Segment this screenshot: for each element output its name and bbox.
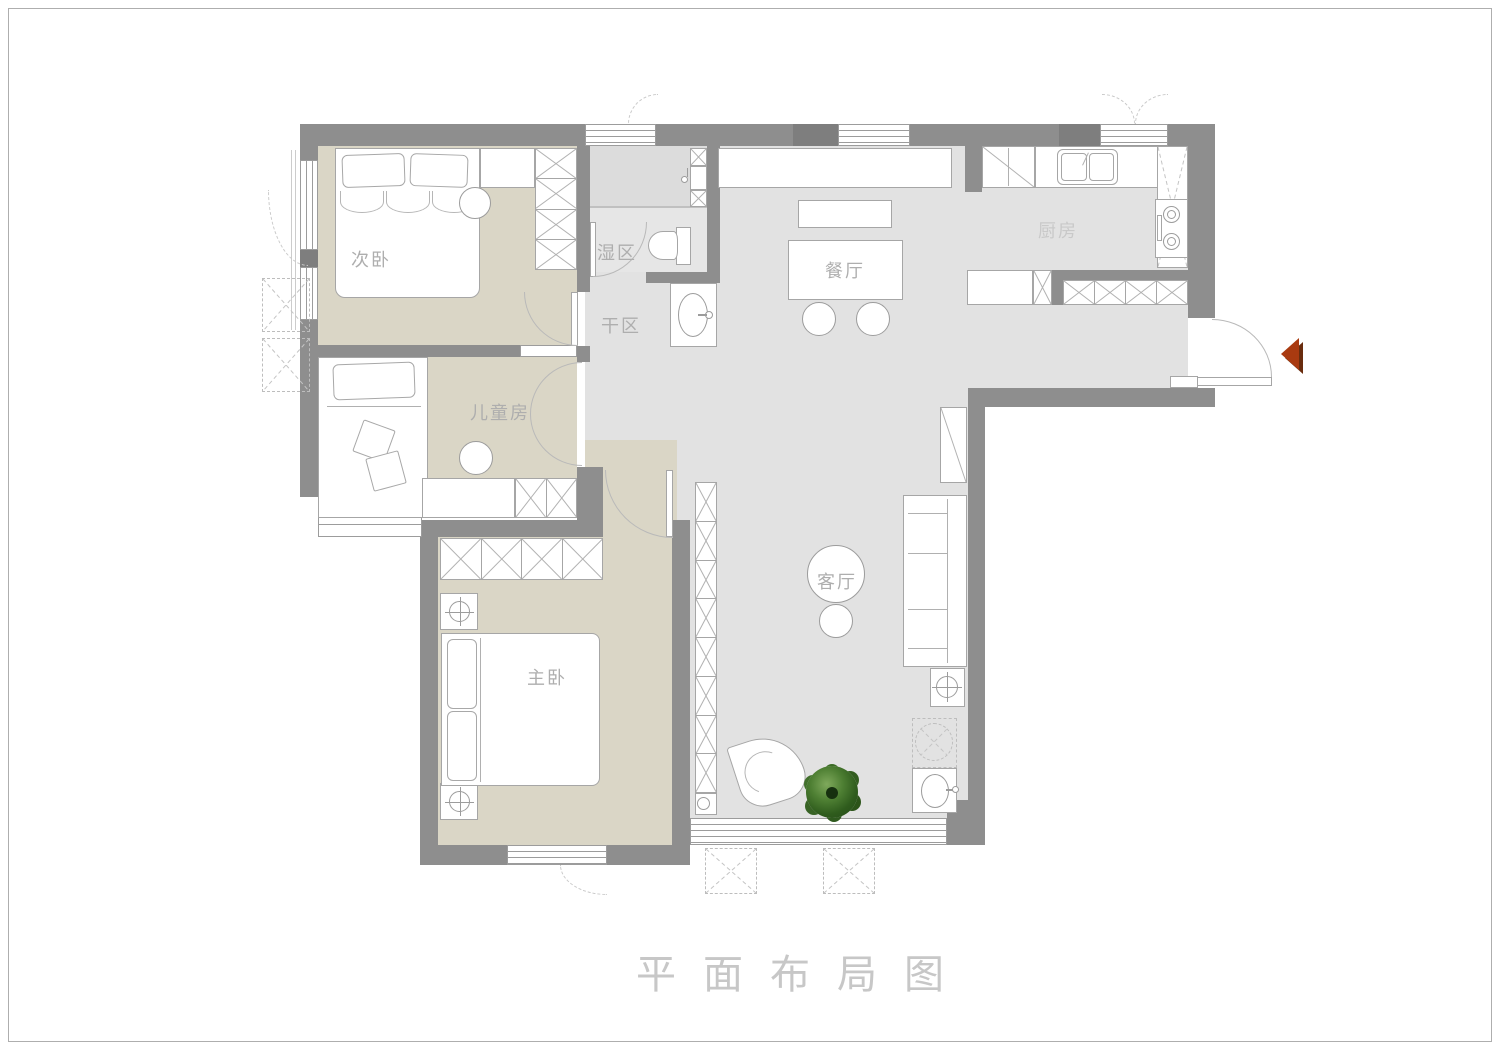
shower-head-icon [687, 168, 688, 177]
window [585, 124, 656, 146]
faucet-icon [698, 314, 707, 316]
kitchen-passage-floor [965, 192, 982, 270]
stool-round [459, 441, 493, 475]
cabinet [1033, 270, 1052, 305]
room-label-wet: 湿区 [597, 239, 637, 265]
wall [300, 124, 318, 160]
floor-plan-canvas: 次卧 儿童房 主卧 湿区 干区 餐厅 [0, 0, 1500, 1050]
bed-double [441, 633, 600, 786]
washer-drum [915, 723, 953, 761]
blanket-line [327, 406, 421, 407]
x-cell [696, 676, 716, 715]
wall-column [1059, 124, 1100, 146]
sofa-cushion-line [908, 553, 947, 554]
dry-area-floor [585, 388, 690, 440]
room-label-master: 主卧 [527, 664, 567, 690]
sofa-back-line [947, 499, 948, 663]
bed-double [335, 148, 480, 298]
x-cell [546, 479, 577, 517]
ac-platform [705, 848, 757, 894]
wall [968, 388, 1215, 407]
entry-arrow-icon [1281, 338, 1299, 370]
blanket-fold [365, 450, 407, 492]
pillow [447, 711, 477, 781]
wall [1052, 270, 1063, 305]
wall [300, 345, 520, 357]
plant [806, 766, 858, 818]
x-cell [481, 539, 522, 579]
wall [577, 146, 590, 292]
duvet-curve [340, 191, 384, 213]
room-label-kids: 儿童房 [470, 399, 530, 425]
bed-line [480, 638, 481, 782]
window-master [507, 845, 607, 865]
window-living [690, 818, 947, 845]
room-label-living: 客厅 [817, 568, 857, 594]
room-label-dry: 干区 [601, 312, 641, 338]
wall [300, 124, 585, 146]
shoe-cabinet [1063, 280, 1188, 305]
x-cell [691, 149, 706, 165]
wall-column [793, 124, 841, 146]
dashed-door-arc [268, 190, 308, 266]
dashed-door-arc [628, 94, 658, 124]
window [1100, 124, 1168, 146]
page-title: 平面布局图 [636, 942, 971, 1000]
x-cell [1064, 281, 1094, 304]
cabinet-knob [697, 797, 710, 810]
floor-lamp-icon [936, 676, 958, 698]
room-label-kitchen: 厨房 [1038, 217, 1078, 243]
nightstand [480, 148, 535, 188]
x-cell [441, 539, 481, 579]
sofa-armrest-line [908, 648, 947, 649]
room-label-bedroom2: 次卧 [351, 246, 391, 272]
x-cell [1094, 281, 1125, 304]
cabinet [798, 200, 892, 228]
sofa-armrest-line [908, 513, 947, 514]
wall [577, 346, 590, 362]
wall [420, 845, 507, 865]
x-cell [536, 149, 576, 178]
shower-head-icon [681, 176, 688, 183]
room-label-dining: 餐厅 [825, 257, 865, 283]
dashed-door-arc [560, 865, 607, 895]
burner-icon [1163, 233, 1180, 250]
x-cell [536, 178, 576, 208]
wall [968, 407, 985, 845]
lounge-chair [735, 736, 803, 804]
x-cell [516, 479, 546, 517]
pillow [341, 153, 405, 188]
sofa [903, 495, 967, 667]
x-cell [1125, 281, 1156, 304]
sink-basin [1061, 153, 1087, 181]
pillow [409, 153, 468, 188]
wardrobe [440, 538, 603, 580]
wall [577, 467, 603, 520]
sink-basin [1089, 153, 1114, 181]
bath-shelf [690, 166, 707, 190]
pillow [447, 639, 477, 709]
dining-chair [856, 302, 890, 336]
ac-platform [262, 338, 310, 392]
wall [607, 845, 690, 865]
ac-platform [262, 278, 310, 332]
x-cell [696, 521, 716, 560]
x-cell [696, 637, 716, 676]
wall [420, 537, 438, 865]
dashed-door-arc [1135, 94, 1168, 124]
side-table [940, 407, 967, 483]
burner-icon [1163, 206, 1180, 223]
x-cell [536, 239, 576, 269]
toilet-tank [676, 227, 691, 265]
wardrobe [515, 478, 577, 518]
dashed-door-arc [1102, 94, 1135, 124]
ac-platform [823, 848, 875, 894]
entry-door-arc [1212, 319, 1272, 377]
wall [965, 124, 982, 192]
x-cell [562, 539, 603, 579]
kitchen-counter [967, 270, 1033, 305]
lamp-icon [449, 601, 470, 622]
entry-door-leaf [1197, 377, 1272, 386]
laundry-basin [921, 774, 949, 808]
pillow [332, 362, 415, 401]
wall [420, 520, 603, 537]
desk [422, 478, 515, 518]
wardrobe [535, 148, 577, 270]
lamp-icon [449, 791, 470, 812]
entry-door-threshold [1170, 376, 1198, 388]
storage-column [695, 482, 717, 793]
stove-panel [1157, 215, 1162, 241]
bed-single [318, 357, 428, 518]
kitchen-sink [1057, 149, 1118, 185]
fridge-divider [1008, 148, 1009, 186]
wall [1052, 270, 1192, 280]
faucet-icon [952, 786, 959, 793]
x-cell [696, 483, 716, 521]
stool-round [459, 187, 491, 219]
x-cell [521, 539, 562, 579]
x-cell [696, 715, 716, 754]
coffee-table-small [819, 604, 853, 638]
dining-chair [802, 302, 836, 336]
duvet-curve [386, 191, 430, 213]
x-cell [696, 598, 716, 637]
wall [672, 520, 690, 845]
window [838, 124, 910, 146]
pass-window [520, 345, 577, 357]
x-cell [1034, 271, 1051, 304]
wall [1188, 124, 1215, 318]
plant-center [826, 787, 838, 799]
bath-shelf [690, 148, 707, 166]
sideboard [718, 148, 952, 188]
wall [646, 272, 720, 283]
x-cell [696, 753, 716, 792]
x-cell [691, 191, 706, 206]
sofa-cushion-line [908, 609, 947, 610]
toilet-bowl [648, 231, 678, 260]
x-cell [536, 209, 576, 239]
bath-shelf [690, 190, 707, 207]
x-cell [1156, 281, 1187, 304]
x-cell [696, 560, 716, 599]
